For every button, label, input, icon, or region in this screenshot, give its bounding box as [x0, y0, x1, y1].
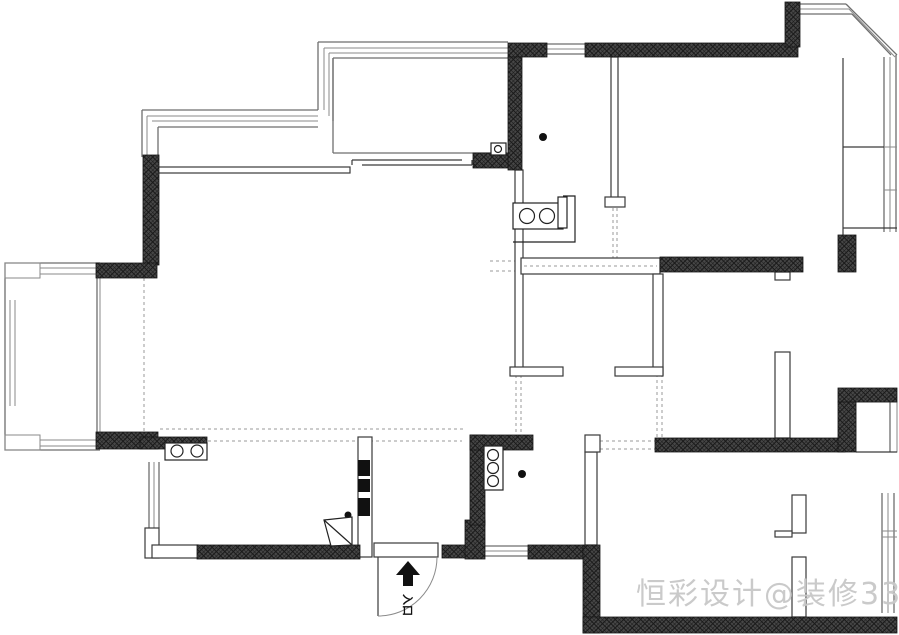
entry-threshold — [374, 543, 438, 557]
balcony-window-north-left — [142, 110, 318, 168]
counter-end-box — [558, 197, 567, 228]
dashed-lines — [144, 208, 662, 449]
bath-east-wall — [653, 274, 663, 375]
bay-window-west — [5, 263, 100, 450]
partition-notch — [775, 531, 792, 537]
kitchen-east-wall-step — [605, 197, 625, 207]
entry-arrow-icon — [396, 561, 420, 586]
entry-label: 入口 — [401, 594, 414, 616]
bottom-room-west-step — [585, 435, 600, 452]
floor-drain-icon — [539, 133, 547, 141]
window-south-small — [485, 546, 528, 556]
floor-plan-drawing: 入口 恒彩设计@装修33天 — [0, 0, 899, 635]
floor-plan-canvas: 入口 恒彩设计@装修33天 — [0, 0, 899, 635]
watermark-text: 恒彩设计@装修33天 — [636, 577, 899, 612]
sink-double-icon — [165, 443, 207, 460]
balcony-window-north-upper — [318, 42, 508, 153]
balcony-sliding-door — [352, 160, 472, 165]
balcony-window-step — [318, 42, 333, 121]
exterior-walls — [96, 2, 897, 633]
gas-meter-icon — [491, 143, 506, 155]
bath-south-stub-left — [510, 367, 563, 376]
closet-stub-top — [775, 272, 790, 280]
bath-south-stub-right — [615, 367, 663, 376]
closet-partition — [775, 352, 790, 438]
cabinet-door-icon — [324, 517, 352, 546]
kitchen-east-wall — [611, 57, 618, 198]
floor-drain-icon — [518, 470, 526, 478]
electrical-box-marker-icons — [358, 460, 370, 516]
kitchen-south-corner — [152, 545, 198, 558]
bottom-room-west-wall — [585, 452, 597, 545]
electrical-box-marker-icon — [358, 498, 370, 516]
window-west-lower — [149, 462, 159, 528]
fixtures — [165, 133, 575, 546]
living-north-wall — [158, 167, 350, 173]
corner-bay-window-northeast — [800, 4, 897, 235]
windows — [5, 4, 897, 613]
electrical-box-marker-icon — [358, 460, 370, 476]
bedroom-partition-upper — [792, 495, 806, 533]
entry-west-wall — [358, 437, 372, 557]
electrical-box-marker-icon — [358, 479, 370, 492]
basin-triple-icon — [484, 446, 503, 490]
window-north-small — [547, 44, 585, 54]
entry-door: 入口 — [378, 557, 437, 616]
